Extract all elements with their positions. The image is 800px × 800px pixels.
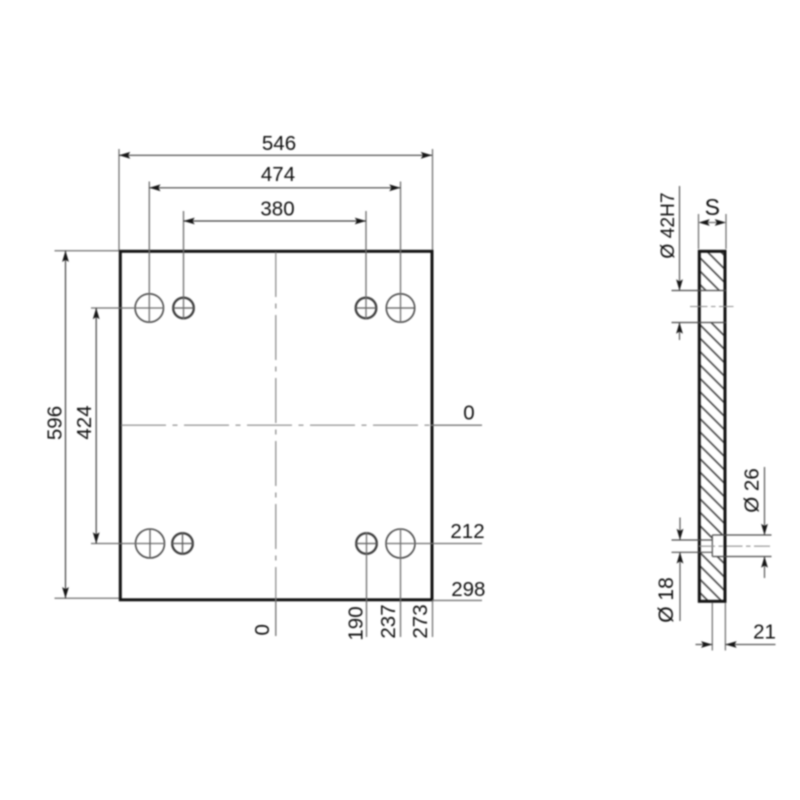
svg-text:237: 237 xyxy=(377,604,400,638)
svg-text:0: 0 xyxy=(463,402,474,425)
svg-text:474: 474 xyxy=(261,163,295,186)
svg-text:212: 212 xyxy=(450,520,484,543)
svg-text:380: 380 xyxy=(260,198,294,221)
svg-text:190: 190 xyxy=(344,606,367,640)
svg-text:Ø 18: Ø 18 xyxy=(655,577,678,623)
svg-text:424: 424 xyxy=(73,405,96,439)
svg-text:596: 596 xyxy=(44,406,67,440)
svg-text:273: 273 xyxy=(409,604,432,638)
svg-text:546: 546 xyxy=(262,132,296,155)
svg-text:0: 0 xyxy=(251,624,274,635)
svg-text:298: 298 xyxy=(451,578,485,601)
svg-text:21: 21 xyxy=(753,621,776,644)
svg-text:S: S xyxy=(705,194,720,220)
svg-text:Ø 42H7: Ø 42H7 xyxy=(658,192,679,258)
svg-text:Ø 26: Ø 26 xyxy=(740,468,763,512)
